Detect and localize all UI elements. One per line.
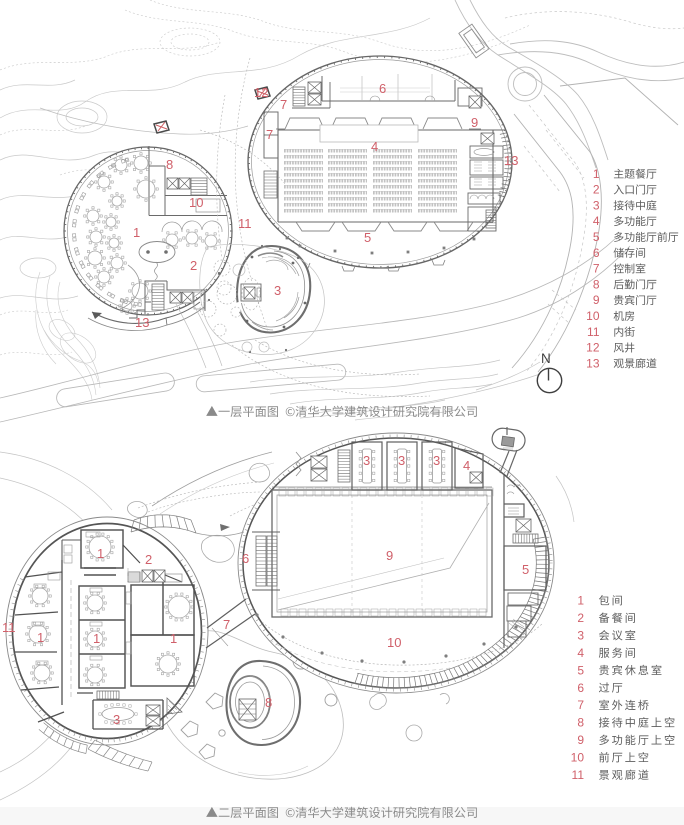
svg-text:7: 7 [280, 97, 287, 112]
svg-text:7: 7 [266, 127, 273, 142]
svg-text:5: 5 [593, 230, 600, 244]
svg-text:2: 2 [190, 258, 197, 273]
svg-text:5: 5 [522, 562, 529, 577]
svg-text:13: 13 [504, 153, 518, 168]
svg-text:9: 9 [471, 115, 478, 130]
svg-text:4: 4 [463, 458, 470, 473]
svg-text:8: 8 [577, 716, 584, 730]
svg-text:3: 3 [577, 628, 584, 642]
svg-text:12: 12 [586, 341, 600, 355]
svg-text:4: 4 [593, 214, 600, 228]
svg-text:10: 10 [387, 635, 401, 650]
svg-text:N: N [541, 351, 551, 366]
svg-text:3: 3 [398, 453, 405, 468]
svg-text:11: 11 [238, 216, 252, 231]
svg-text:6: 6 [379, 81, 386, 96]
svg-text:7: 7 [593, 262, 600, 276]
svg-text:8: 8 [265, 695, 272, 710]
svg-text:6: 6 [242, 551, 249, 566]
svg-text:3: 3 [363, 453, 370, 468]
svg-text:3: 3 [274, 283, 281, 298]
svg-text:4: 4 [577, 646, 584, 660]
svg-text:10: 10 [586, 309, 600, 323]
svg-text:1: 1 [37, 630, 44, 645]
svg-text:2: 2 [145, 552, 152, 567]
svg-text:10: 10 [189, 195, 203, 210]
svg-text:12: 12 [254, 85, 268, 100]
svg-text:6: 6 [593, 246, 600, 260]
svg-text:7: 7 [223, 617, 230, 632]
svg-text:2: 2 [577, 611, 584, 625]
svg-text:5: 5 [577, 663, 584, 677]
svg-text:8: 8 [166, 157, 173, 172]
svg-text:9: 9 [577, 733, 584, 747]
svg-text:6: 6 [577, 681, 584, 695]
svg-text:1: 1 [93, 631, 100, 646]
svg-text:3: 3 [113, 712, 120, 727]
svg-text:11: 11 [587, 325, 600, 339]
svg-text:2: 2 [593, 183, 600, 197]
svg-text:9: 9 [386, 548, 393, 563]
svg-text:1: 1 [577, 594, 584, 608]
svg-text:3: 3 [593, 198, 600, 212]
svg-text:13: 13 [586, 356, 600, 370]
svg-text:1: 1 [97, 546, 104, 561]
svg-text:10: 10 [571, 751, 585, 765]
svg-text:9: 9 [593, 293, 600, 307]
svg-text:1: 1 [170, 631, 177, 646]
svg-text:1: 1 [133, 225, 140, 240]
svg-text:3: 3 [433, 453, 440, 468]
svg-text:11: 11 [572, 768, 585, 782]
svg-text:8: 8 [593, 277, 600, 291]
svg-text:5: 5 [364, 230, 371, 245]
svg-text:1: 1 [593, 167, 600, 181]
svg-text:4: 4 [371, 139, 378, 154]
svg-text:13: 13 [135, 315, 149, 330]
svg-text:7: 7 [577, 698, 584, 712]
svg-text:11: 11 [2, 620, 16, 635]
